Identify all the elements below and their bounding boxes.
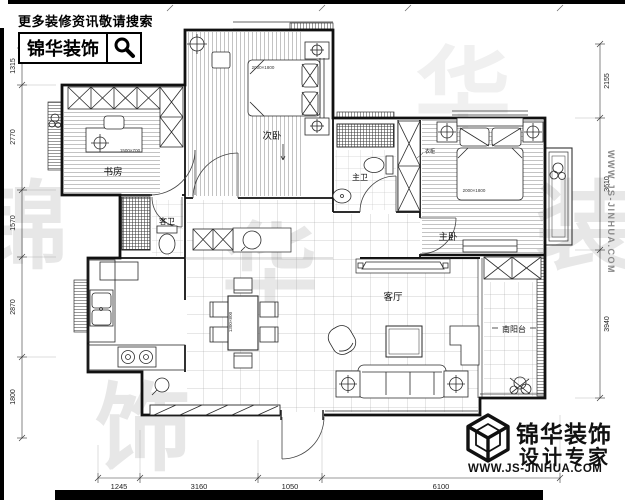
header-tagline: 更多装修资讯敬请搜索 [18, 11, 153, 30]
label-master-bath: 主卫 [352, 172, 368, 182]
label-master-bed-size: 2000×1800 [463, 188, 486, 193]
dimensions-top-ticks [167, 5, 563, 11]
brand-search-box: 锦华装饰 [18, 32, 142, 64]
label-wardrobe: 衣柜 [425, 148, 435, 155]
left-edge-bar [0, 28, 4, 500]
dim-right-2: 3940 [604, 316, 611, 332]
dim-left-1: 2770 [10, 129, 17, 145]
brand-name: 锦华装饰 [20, 34, 106, 62]
bottom-black-bar [55, 490, 543, 500]
label-south-balcony: 南阳台 [502, 324, 526, 334]
site-watermark-vertical: WWW.JS-JINHUA.COM [606, 150, 616, 274]
label-desk-size: 1500×700 [120, 148, 141, 153]
footer-site-url: WWW.JS-JINHUA.COM [468, 463, 602, 475]
dim-left-3: 2870 [10, 299, 17, 315]
label-second-bed-size: 2000×1800 [252, 65, 275, 70]
label-guest-bath: 客卫 [159, 216, 175, 226]
search-icon [108, 34, 140, 62]
furniture-kitchen [88, 260, 185, 370]
floorplan-page: 锦 华 装 饰 华 [0, 0, 625, 500]
label-study: 书房 [103, 166, 122, 178]
label-second-bedroom: 次卧 [262, 130, 282, 142]
top-edge-bar [8, 0, 625, 4]
dim-left-0: 1315 [10, 58, 17, 74]
furniture-hallway [193, 228, 291, 252]
furniture-wardrobe [398, 121, 423, 211]
dim-right-0: 2155 [604, 73, 611, 89]
dim-left-4: 1800 [10, 389, 17, 405]
cube-logo-icon [463, 411, 513, 470]
label-living-room: 客厅 [383, 291, 403, 303]
label-master-bedroom: 主卧 [438, 231, 458, 243]
dimensions-right [575, 41, 605, 401]
dim-left-2: 1570 [10, 215, 17, 231]
dimensions-left-labels: 1315 2770 1570 2870 1800 [10, 58, 17, 405]
label-dining-table-size: 1300×800 [228, 311, 233, 332]
